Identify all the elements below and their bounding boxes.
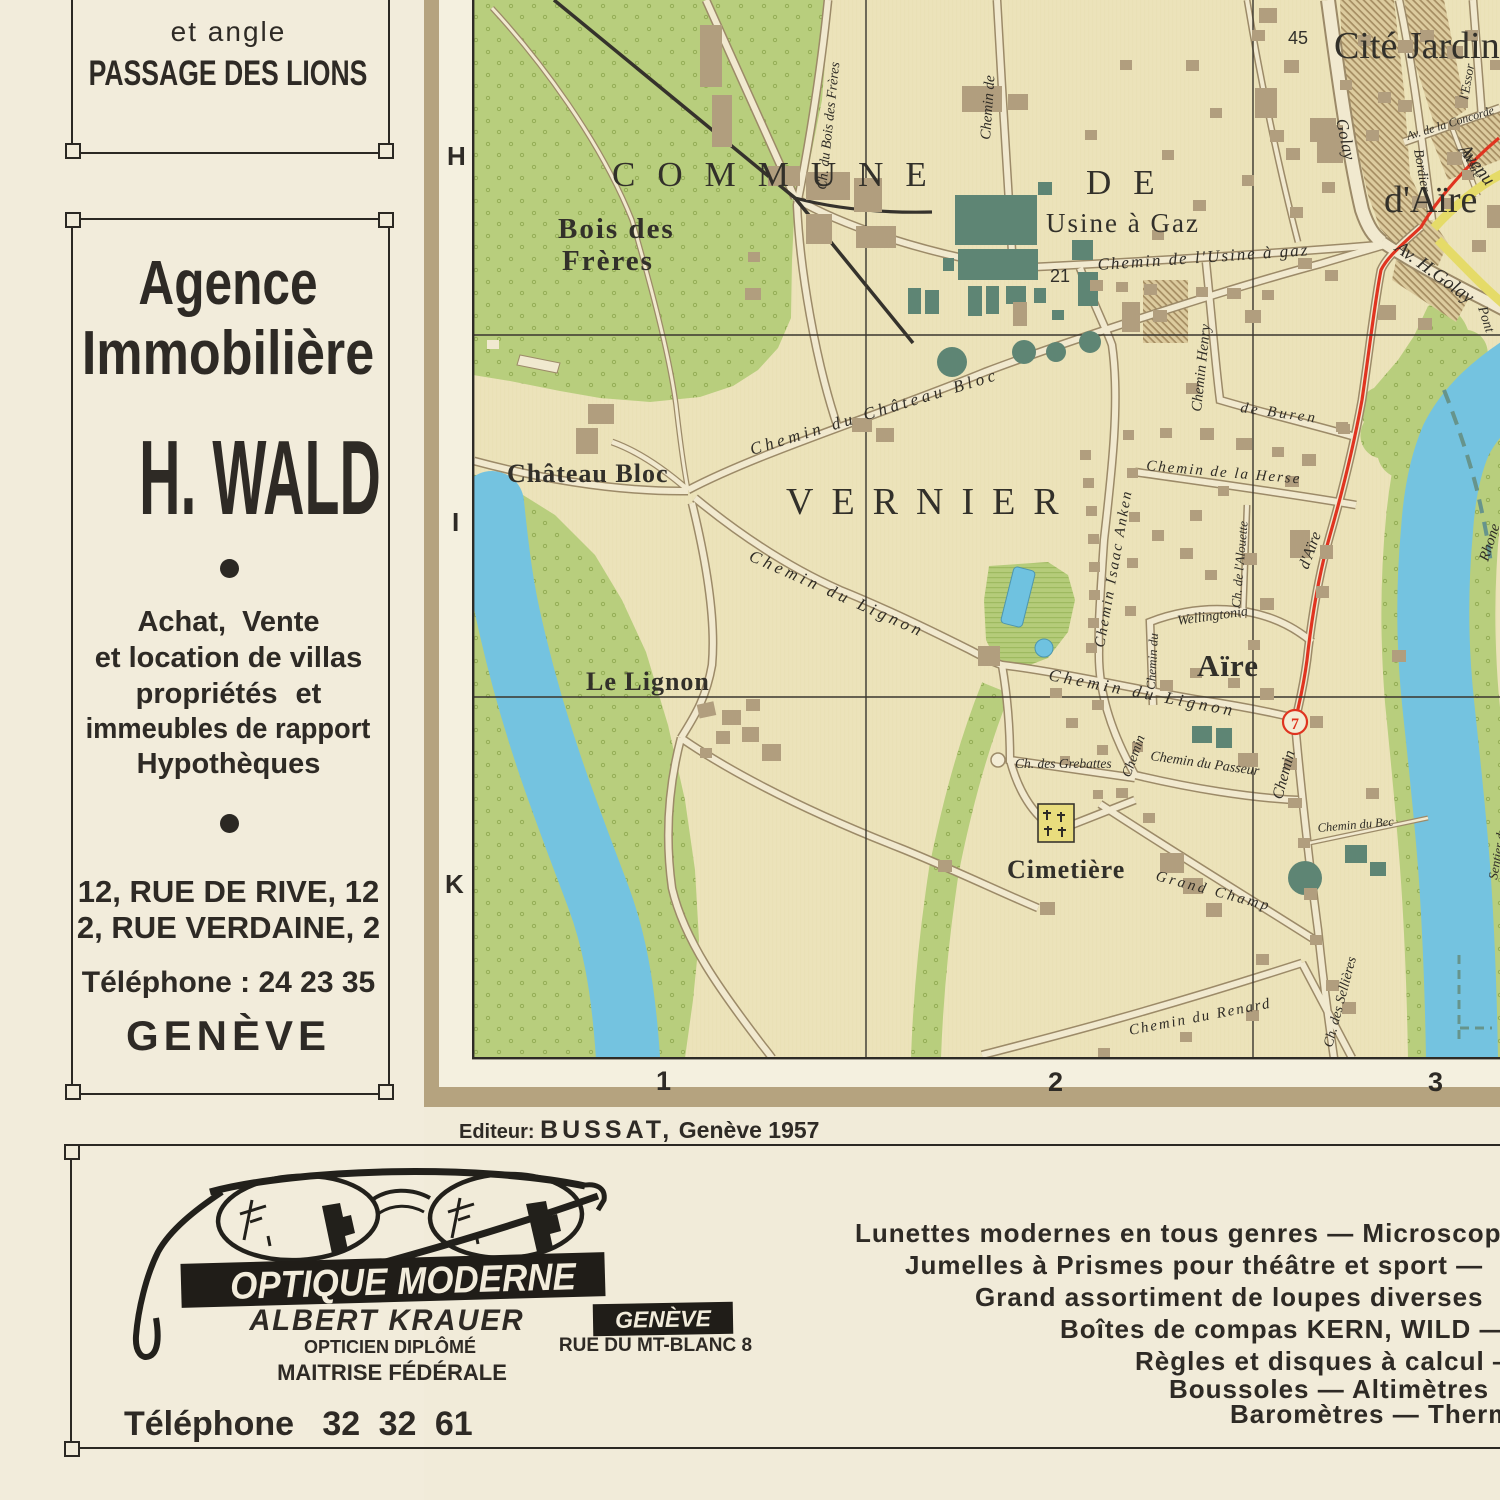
svg-text:Château Bloc: Château Bloc xyxy=(507,459,669,488)
svg-text:Cité Jardin: Cité Jardin xyxy=(1334,25,1500,67)
svg-text:Cimetière: Cimetière xyxy=(1007,855,1125,884)
svg-text:Aïre: Aïre xyxy=(1197,648,1259,683)
svg-text:Bois des: Bois des xyxy=(558,213,675,245)
svg-text:Ch. des Grebattes: Ch. des Grebattes xyxy=(1015,756,1112,771)
svg-text:1: 1 xyxy=(656,1066,671,1096)
svg-text:COMMUNE: COMMUNE xyxy=(612,155,949,194)
svg-text:Frères: Frères xyxy=(562,245,654,277)
svg-text:21: 21 xyxy=(1050,266,1070,286)
svg-text:Usine à Gaz: Usine à Gaz xyxy=(1046,208,1200,238)
svg-text:Le Lignon: Le Lignon xyxy=(586,667,710,696)
svg-text:3: 3 xyxy=(1428,1067,1443,1097)
svg-text:DE: DE xyxy=(1086,163,1177,202)
svg-text:H: H xyxy=(447,141,466,171)
svg-text:Chemin du: Chemin du xyxy=(1143,632,1161,690)
svg-text:2: 2 xyxy=(1048,1067,1063,1097)
svg-text:VERNIER: VERNIER xyxy=(786,481,1077,523)
svg-text:I: I xyxy=(452,507,459,537)
svg-text:45: 45 xyxy=(1288,28,1308,48)
svg-text:K: K xyxy=(445,869,464,899)
svg-text:7: 7 xyxy=(1291,716,1299,733)
